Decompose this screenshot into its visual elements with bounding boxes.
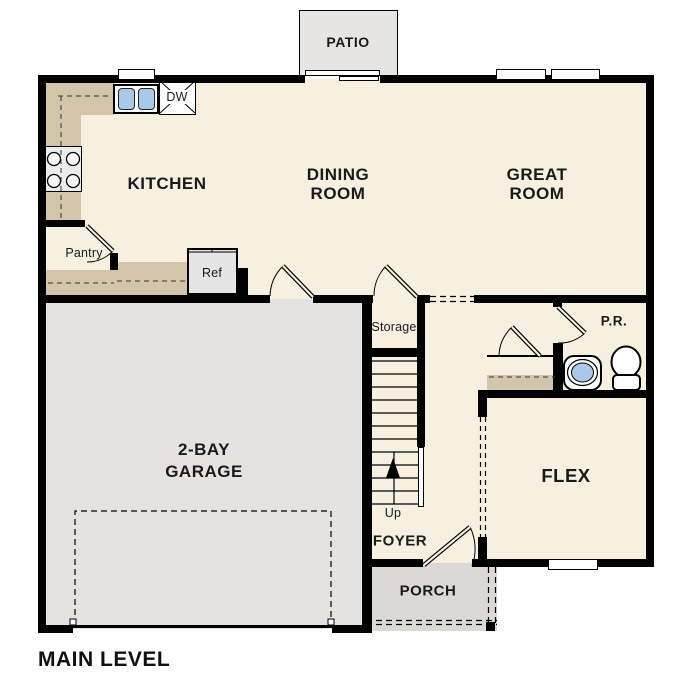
refrigerator-door-lines: [188, 248, 237, 252]
up-label: Up: [385, 506, 401, 520]
garage-label: 2-BAY GARAGE: [165, 439, 243, 483]
kitchen-label: KITCHEN: [127, 174, 206, 194]
dining-room-label-line1: DINING: [307, 165, 370, 184]
garage-label-line2: GARAGE: [165, 461, 243, 483]
great-room-label: GREAT ROOM: [507, 165, 568, 203]
main-level-title: MAIN LEVEL: [38, 648, 170, 672]
hall-cased-opening-dashed: [430, 297, 474, 302]
garage-label-line1: 2-BAY: [165, 439, 243, 461]
counter-cabinet-dashed: [48, 96, 555, 377]
flex-cased-opening-dashed: [481, 417, 486, 537]
powder-room-label: P.R.: [601, 314, 628, 329]
closet-door: [499, 327, 540, 356]
dining-room-label-line2: ROOM: [307, 184, 370, 203]
toilet-icon: [612, 347, 641, 391]
stove-burners-icon: [48, 153, 80, 188]
garage-jamb-left: [70, 619, 76, 625]
storage-label: Storage: [371, 320, 416, 334]
patio-label: PATIO: [326, 34, 369, 50]
up-arrow-icon: [386, 458, 400, 478]
floor-plan: PATIO KITCHEN DINING ROOM GREAT ROOM 2-B…: [0, 0, 687, 687]
dishwasher-label: DW: [165, 90, 188, 104]
great-room-label-line2: ROOM: [507, 184, 568, 203]
powder-room-door: [558, 307, 585, 343]
garage-entry-door: [270, 266, 313, 297]
front-door: [424, 527, 475, 566]
refrigerator-label: Ref: [202, 266, 222, 280]
stairs: [372, 361, 418, 504]
flex-label: FLEX: [541, 465, 590, 487]
pantry-label: Pantry: [65, 246, 102, 260]
foyer-label: FOYER: [373, 533, 427, 550]
garage-jamb-right: [328, 619, 334, 625]
storage-door: [374, 266, 417, 297]
symbol-overlay: [0, 0, 687, 687]
garage-door-dashed-outline: [75, 511, 331, 625]
great-room-label-line1: GREAT: [507, 165, 568, 184]
pr-sink-icon: [564, 356, 601, 390]
porch-label: PORCH: [400, 583, 457, 600]
dining-room-label: DINING ROOM: [307, 165, 370, 203]
